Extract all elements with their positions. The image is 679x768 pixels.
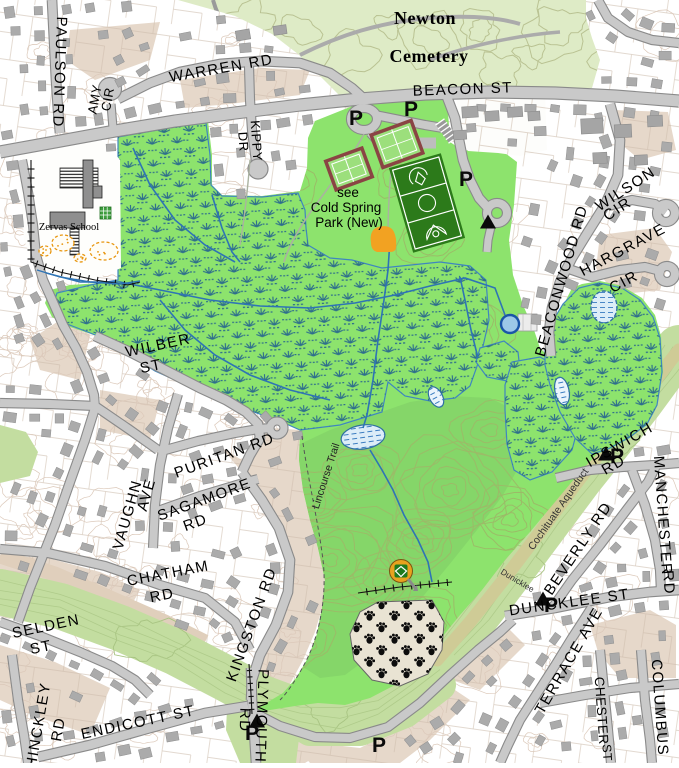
svg-text:Zervas School: Zervas School (39, 222, 99, 233)
svg-text:see: see (337, 185, 359, 200)
svg-text:BEACON ST: BEACON ST (412, 79, 513, 99)
svg-text:PLYMOUTH: PLYMOUTH (251, 669, 271, 763)
svg-text:P: P (349, 107, 363, 130)
svg-text:P: P (459, 168, 473, 191)
svg-text:ST: ST (599, 744, 614, 762)
svg-text:RD: RD (659, 570, 678, 596)
svg-text:P: P (404, 98, 418, 121)
svg-text:RD: RD (236, 708, 254, 733)
svg-text:Cemetery: Cemetery (390, 46, 469, 66)
svg-text:DR: DR (235, 131, 251, 152)
svg-text:Park (New): Park (New) (315, 215, 383, 230)
svg-text:Cold Spring: Cold Spring (311, 200, 382, 215)
svg-text:Newton: Newton (394, 8, 456, 28)
svg-text:P: P (372, 734, 386, 757)
